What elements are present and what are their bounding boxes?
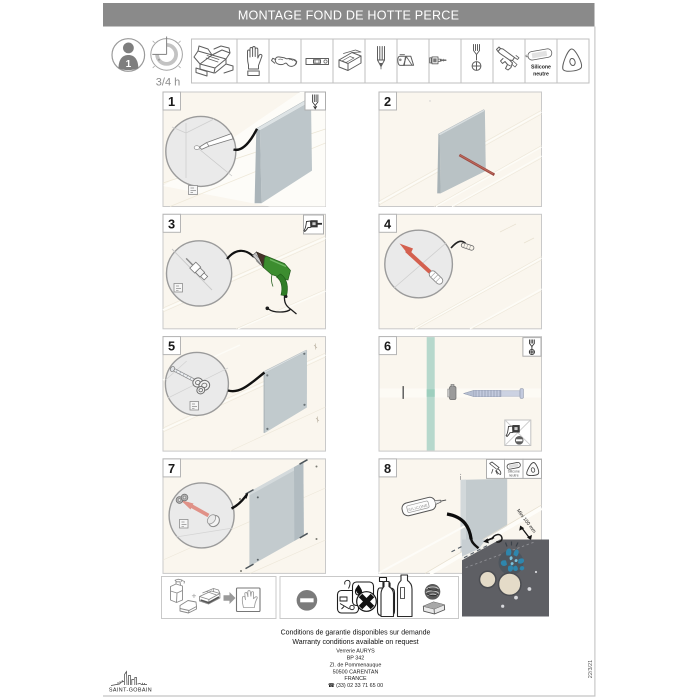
svg-text:neutre: neutre — [509, 473, 519, 477]
svg-text:4: 4 — [384, 216, 392, 231]
svg-text:1: 1 — [126, 59, 132, 70]
svg-text:Conditions de garantie disponi: Conditions de garantie disponibles sur d… — [281, 630, 431, 637]
svg-text:+: + — [192, 591, 197, 601]
svg-text:8: 8 — [384, 461, 391, 476]
svg-text:50500 CARENTAN: 50500 CARENTAN — [333, 670, 379, 676]
svg-text:FRANCE: FRANCE — [344, 676, 367, 682]
svg-text:Verrerie AURYS: Verrerie AURYS — [336, 649, 375, 655]
svg-text:22/3/21: 22/3/21 — [588, 660, 594, 678]
svg-text:2: 2 — [384, 94, 391, 109]
svg-text:Warranty conditions available: Warranty conditions available on request — [292, 639, 418, 646]
svg-text:neutre: neutre — [533, 72, 549, 78]
svg-text:7: 7 — [168, 461, 175, 476]
svg-text:☎ (33) 02 33 71 65 00: ☎ (33) 02 33 71 65 00 — [328, 683, 383, 689]
svg-text:5: 5 — [168, 339, 175, 354]
svg-text:3/4 h: 3/4 h — [156, 77, 180, 89]
svg-text:1: 1 — [168, 94, 175, 109]
svg-text:6: 6 — [384, 339, 391, 354]
svg-text:3: 3 — [168, 216, 175, 231]
svg-text:ZI. de Pommenauque: ZI. de Pommenauque — [330, 663, 382, 669]
svg-text:MONTAGE FOND DE HOTTE PERCE: MONTAGE FOND DE HOTTE PERCE — [238, 9, 459, 23]
svg-text:Silicone: Silicone — [531, 65, 551, 71]
svg-text:BP 342: BP 342 — [347, 656, 365, 662]
svg-text:SAINT-GOBAIN: SAINT-GOBAIN — [109, 688, 152, 694]
